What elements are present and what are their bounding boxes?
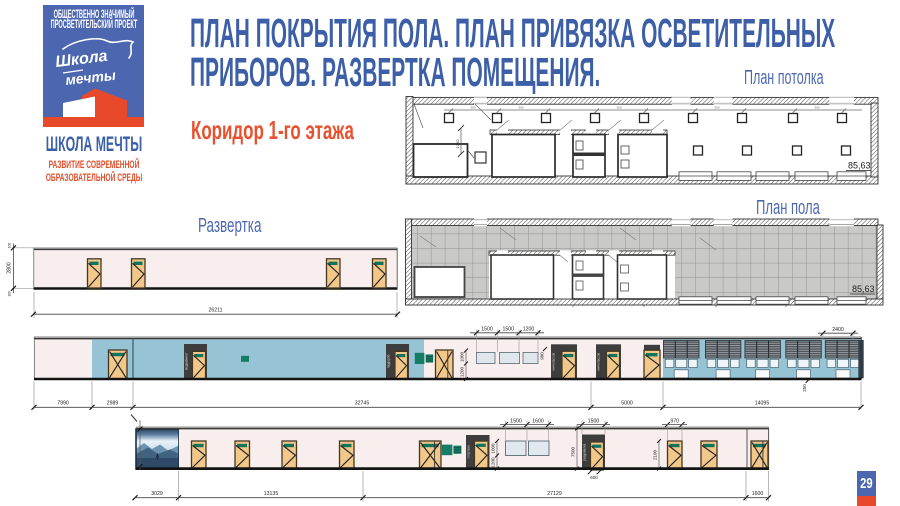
svg-text:7990: 7990 [57,401,69,407]
svg-text:13135: 13135 [264,491,279,497]
svg-text:1500: 1500 [588,418,600,424]
svg-text:5000: 5000 [621,401,633,407]
svg-text:2800: 2800 [7,262,13,274]
svg-text:300: 300 [814,106,819,110]
svg-text:100: 100 [8,243,12,249]
svg-text:1500: 1500 [481,327,493,333]
svg-text:600: 600 [590,475,598,480]
svg-text:1000: 1000 [491,443,496,454]
svg-text:2100: 2100 [653,449,658,460]
svg-text:1290: 1290 [455,139,460,149]
svg-text:3029: 3029 [151,491,163,497]
svg-text:300: 300 [470,106,475,110]
svg-text:раздевалка: раздевалка [582,443,586,460]
svg-text:спортзал: спортзал [466,445,470,458]
svg-text:1600: 1600 [752,491,764,497]
svg-text:32745: 32745 [355,401,370,407]
svg-text:7500: 7500 [571,446,576,457]
svg-text:27129: 27129 [547,491,562,497]
svg-text:14095: 14095 [755,401,770,407]
svg-text:медкабинет: медкабинет [184,352,188,370]
svg-text:1200: 1200 [523,327,535,333]
svg-text:нач классов: нач классов [596,353,600,371]
svg-text:300: 300 [518,106,523,110]
svg-text:1500: 1500 [510,418,522,424]
svg-text:1200: 1200 [460,366,465,377]
svg-text:300: 300 [714,106,719,110]
svg-text:1200: 1200 [491,457,496,468]
svg-text:1600: 1600 [532,418,544,424]
svg-text:250: 250 [802,384,807,392]
svg-text:нач классов: нач классов [551,353,555,371]
svg-text:300: 300 [616,106,621,110]
svg-text:85,63: 85,63 [848,161,871,171]
svg-text:1000: 1000 [460,351,465,362]
svg-text:2400: 2400 [832,327,844,333]
svg-text:1500: 1500 [503,327,515,333]
svg-text:970: 970 [670,418,679,424]
svg-text:гардероб: гардероб [386,354,390,368]
svg-text:26211: 26211 [208,308,222,314]
svg-text:2989: 2989 [107,401,119,407]
svg-text:900: 900 [540,352,545,360]
svg-text:100: 100 [8,291,12,297]
svg-text:85,63: 85,63 [852,284,875,294]
